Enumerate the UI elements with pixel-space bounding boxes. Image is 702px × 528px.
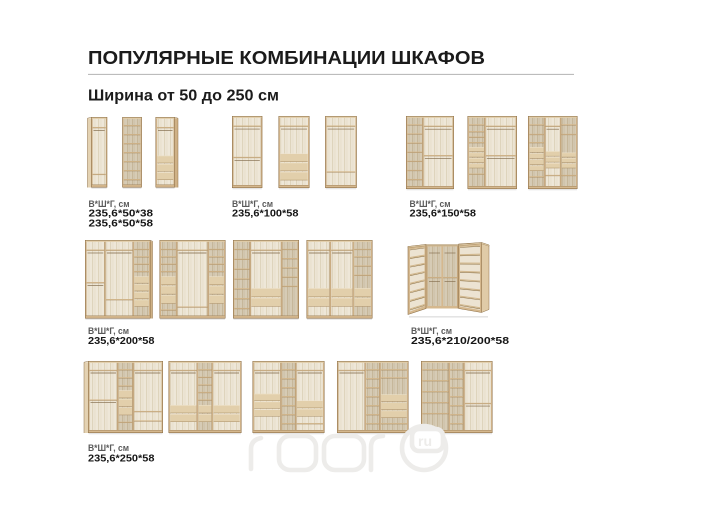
svg-text:Ширина от 50 до 250 см: Ширина от 50 до 250 см <box>88 88 279 105</box>
svg-text:235,6*250*58: 235,6*250*58 <box>88 453 155 464</box>
svg-text:В*Ш*Г, см: В*Ш*Г, см <box>232 199 273 209</box>
svg-text:В*Ш*Г, см: В*Ш*Г, см <box>88 443 129 453</box>
svg-text:235,6*100*58: 235,6*100*58 <box>232 209 299 220</box>
svg-text:В*Ш*Г, см: В*Ш*Г, см <box>88 326 129 336</box>
svg-text:В*Ш*Г, см: В*Ш*Г, см <box>89 199 130 209</box>
svg-text:235,6*50*58: 235,6*50*58 <box>89 218 154 229</box>
svg-text:235,6*150*58: 235,6*150*58 <box>410 209 477 220</box>
svg-text:235,6*210/200*58: 235,6*210/200*58 <box>411 336 510 347</box>
svg-text:В*Ш*Г, см: В*Ш*Г, см <box>411 326 452 336</box>
svg-text:В*Ш*Г, см: В*Ш*Г, см <box>410 199 451 209</box>
svg-text:ru: ru <box>418 433 432 449</box>
svg-text:235,6*200*58: 235,6*200*58 <box>88 336 155 347</box>
svg-text:ПОПУЛЯРНЫЕ КОМБИНАЦИИ ШКАФОВ: ПОПУЛЯРНЫЕ КОМБИНАЦИИ ШКАФОВ <box>88 48 485 68</box>
